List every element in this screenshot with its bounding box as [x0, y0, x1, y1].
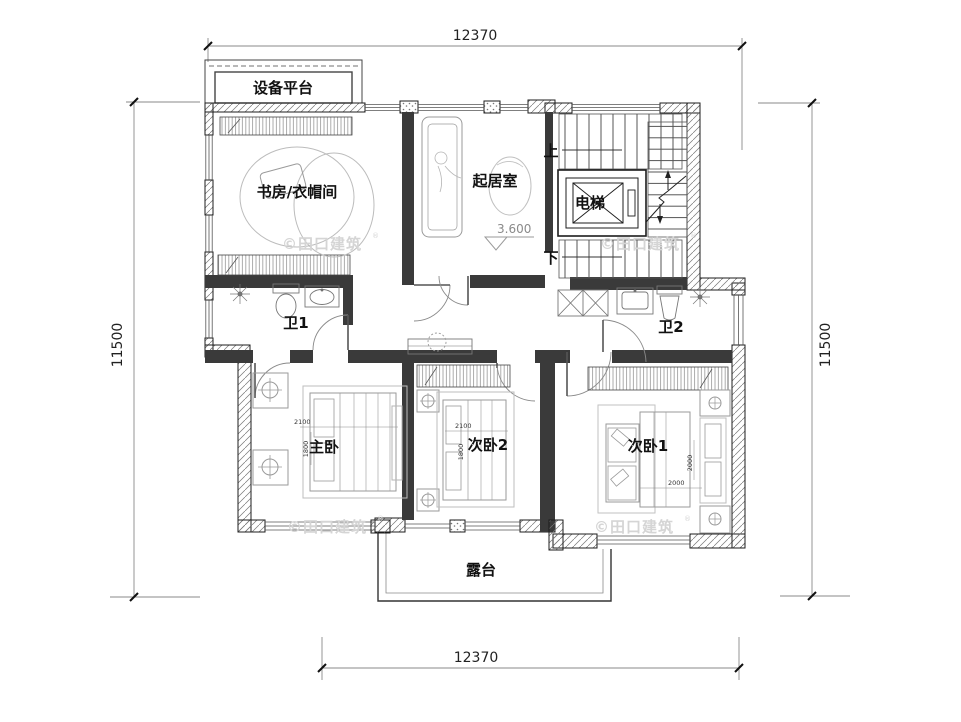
bath1	[230, 284, 339, 318]
room-label-bedroom1: 次卧1	[628, 437, 668, 455]
room-label-bath1: 卫1	[283, 314, 308, 332]
room-label-study: 书房/衣帽间	[257, 183, 337, 201]
watermark-reg: ®	[690, 232, 697, 240]
sink-2	[617, 288, 653, 314]
nightstand	[253, 450, 288, 485]
shower-drain-1	[230, 284, 250, 304]
bed1	[640, 412, 726, 507]
watermark-reg: ®	[684, 515, 691, 523]
shower-drain-2	[690, 287, 710, 307]
floorplan-canvas: 12370 12370 11500 11500 设备平台	[0, 0, 961, 722]
bath2	[558, 286, 710, 320]
nightstand	[700, 506, 730, 533]
watermark-text: ©田口建筑	[287, 518, 367, 536]
bed-dim: 2100	[294, 418, 311, 426]
watermark-reg: ®	[372, 232, 379, 240]
plant	[428, 333, 446, 351]
sink-1	[305, 286, 339, 307]
toilet-1	[273, 284, 299, 318]
dim-top: 12370	[453, 28, 498, 44]
wardrobe	[588, 367, 728, 390]
room-label-bedroom2: 次卧2	[468, 436, 508, 454]
dim-left: 11500	[110, 323, 126, 368]
nightstand	[253, 373, 288, 408]
level-marker	[485, 237, 534, 250]
room-label-master: 主卧	[309, 438, 339, 456]
nightstand	[417, 390, 439, 412]
room-label-living: 起居室	[471, 172, 517, 190]
dim-bottom: 12370	[454, 650, 499, 666]
couch	[598, 405, 655, 513]
dresser	[392, 406, 402, 480]
nightstand	[417, 489, 439, 511]
master-bedroom	[253, 373, 407, 498]
bed-dim: 2100	[455, 422, 472, 430]
room-label-equipment-platform: 设备平台	[253, 79, 313, 97]
dim-right: 11500	[818, 323, 834, 368]
toilet-2	[657, 286, 682, 320]
room-label-elevator: 电梯	[575, 194, 605, 212]
stair-down-label: 下	[543, 249, 558, 267]
watermark-reg: ®	[377, 515, 384, 523]
room-label-terrace: 露台	[466, 561, 496, 579]
level-value: 3.600	[497, 222, 531, 236]
nightstand	[700, 390, 730, 416]
bed-dim: 2000	[686, 455, 694, 472]
room-label-bath2: 卫2	[658, 318, 683, 336]
stair-up-label: 上	[543, 142, 558, 160]
watermark-text: ©田口建筑	[594, 518, 674, 536]
floorplan-drawing: 12370 12370 11500 11500 设备平台	[0, 0, 961, 722]
watermark-text: ©田口建筑	[600, 235, 680, 253]
bed-dim: 1800	[457, 444, 465, 461]
bed-dim: 2000	[668, 479, 685, 487]
watermark-text: ©田口建筑	[282, 235, 362, 253]
linen-cabinet	[558, 290, 608, 316]
